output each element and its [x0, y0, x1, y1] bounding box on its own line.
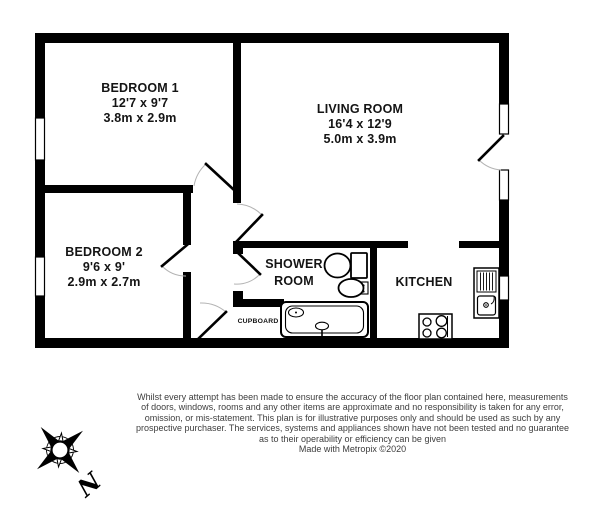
bedroom1-window [36, 118, 45, 160]
wall-shower-kitchen [370, 248, 377, 338]
metropix-credit: Made with Metropix ©2020 [100, 444, 600, 454]
living-door-leaf [237, 215, 262, 241]
door-arcs [162, 160, 501, 312]
wall-bedroom2-hall-upper [183, 193, 191, 245]
bedroom1-dim-imperial: 12'7 x 9'7 [112, 96, 169, 110]
cupboard-label: CUPBOARD [238, 318, 279, 325]
bedroom1-dim-metric: 3.8m x 2.9m [103, 111, 176, 125]
floorplan-page: BEDROOM 1 12'7 x 9'7 3.8m x 2.9m LIVING … [0, 0, 600, 520]
wall-living-kitchen [459, 241, 499, 248]
basin-icon [339, 279, 369, 297]
wall-cupboard-top [233, 299, 284, 307]
shower-room-label-line1: SHOWER [265, 257, 322, 271]
bedroom1-door-leaf [206, 164, 233, 189]
disclaimer-line: omission, or mis-statement. This plan is… [100, 413, 600, 423]
bedroom2-label: BEDROOM 2 [65, 245, 143, 259]
shower-door-leaf [238, 253, 260, 274]
living-door-arc [237, 204, 262, 215]
disclaimer-line: of doors, windows, rooms and any other i… [100, 402, 600, 412]
wall-bedroom1-living [233, 43, 241, 203]
footer-disclaimer: Whilst every attempt has been made to en… [100, 392, 600, 454]
bedroom2-door-leaf [162, 245, 187, 266]
living-room-dim-metric: 5.0m x 3.9m [323, 132, 396, 146]
bath-icon [281, 302, 368, 337]
shower-door-arc [234, 274, 260, 284]
wall-bedroom1-bedroom2 [35, 185, 193, 193]
wall-bedroom2-hall-lower [183, 272, 191, 338]
cupboard-door-arc [200, 303, 226, 312]
bedroom2-dim-metric: 2.9m x 2.7m [67, 275, 140, 289]
bedroom2-dim-imperial: 9'6 x 9' [83, 260, 125, 274]
bedroom1-door-arc [194, 164, 206, 186]
kitchen-sink-icon [474, 268, 499, 318]
living-room-label: LIVING ROOM [317, 102, 403, 116]
bedroom2-door-arc [162, 266, 186, 276]
disclaimer-line: prospective purchaser. The services, sys… [100, 423, 600, 433]
toilet-icon [325, 253, 368, 278]
hob-icon [419, 314, 452, 339]
bedroom1-label: BEDROOM 1 [101, 81, 179, 95]
living-window-lower [500, 170, 509, 200]
compass-north-label: N [70, 465, 107, 503]
wall-top-exterior [35, 33, 509, 43]
kitchen-label: KITCHEN [396, 275, 453, 289]
wall-shower-door-stub-bottom [233, 291, 243, 300]
living-room-dim-imperial: 16'4 x 12'9 [328, 117, 392, 131]
wall-living-shower [233, 241, 408, 248]
disclaimer-line: as to their operability or efficiency ca… [100, 434, 600, 444]
disclaimer-line: Whilst every attempt has been made to en… [100, 392, 600, 402]
bedroom2-window [36, 257, 45, 296]
cupboard-door-leaf [198, 312, 226, 339]
living-exterior-door-arc [479, 160, 501, 170]
kitchen-window [500, 276, 509, 300]
living-window-upper [500, 104, 509, 134]
shower-room-label-line2: ROOM [274, 274, 314, 288]
